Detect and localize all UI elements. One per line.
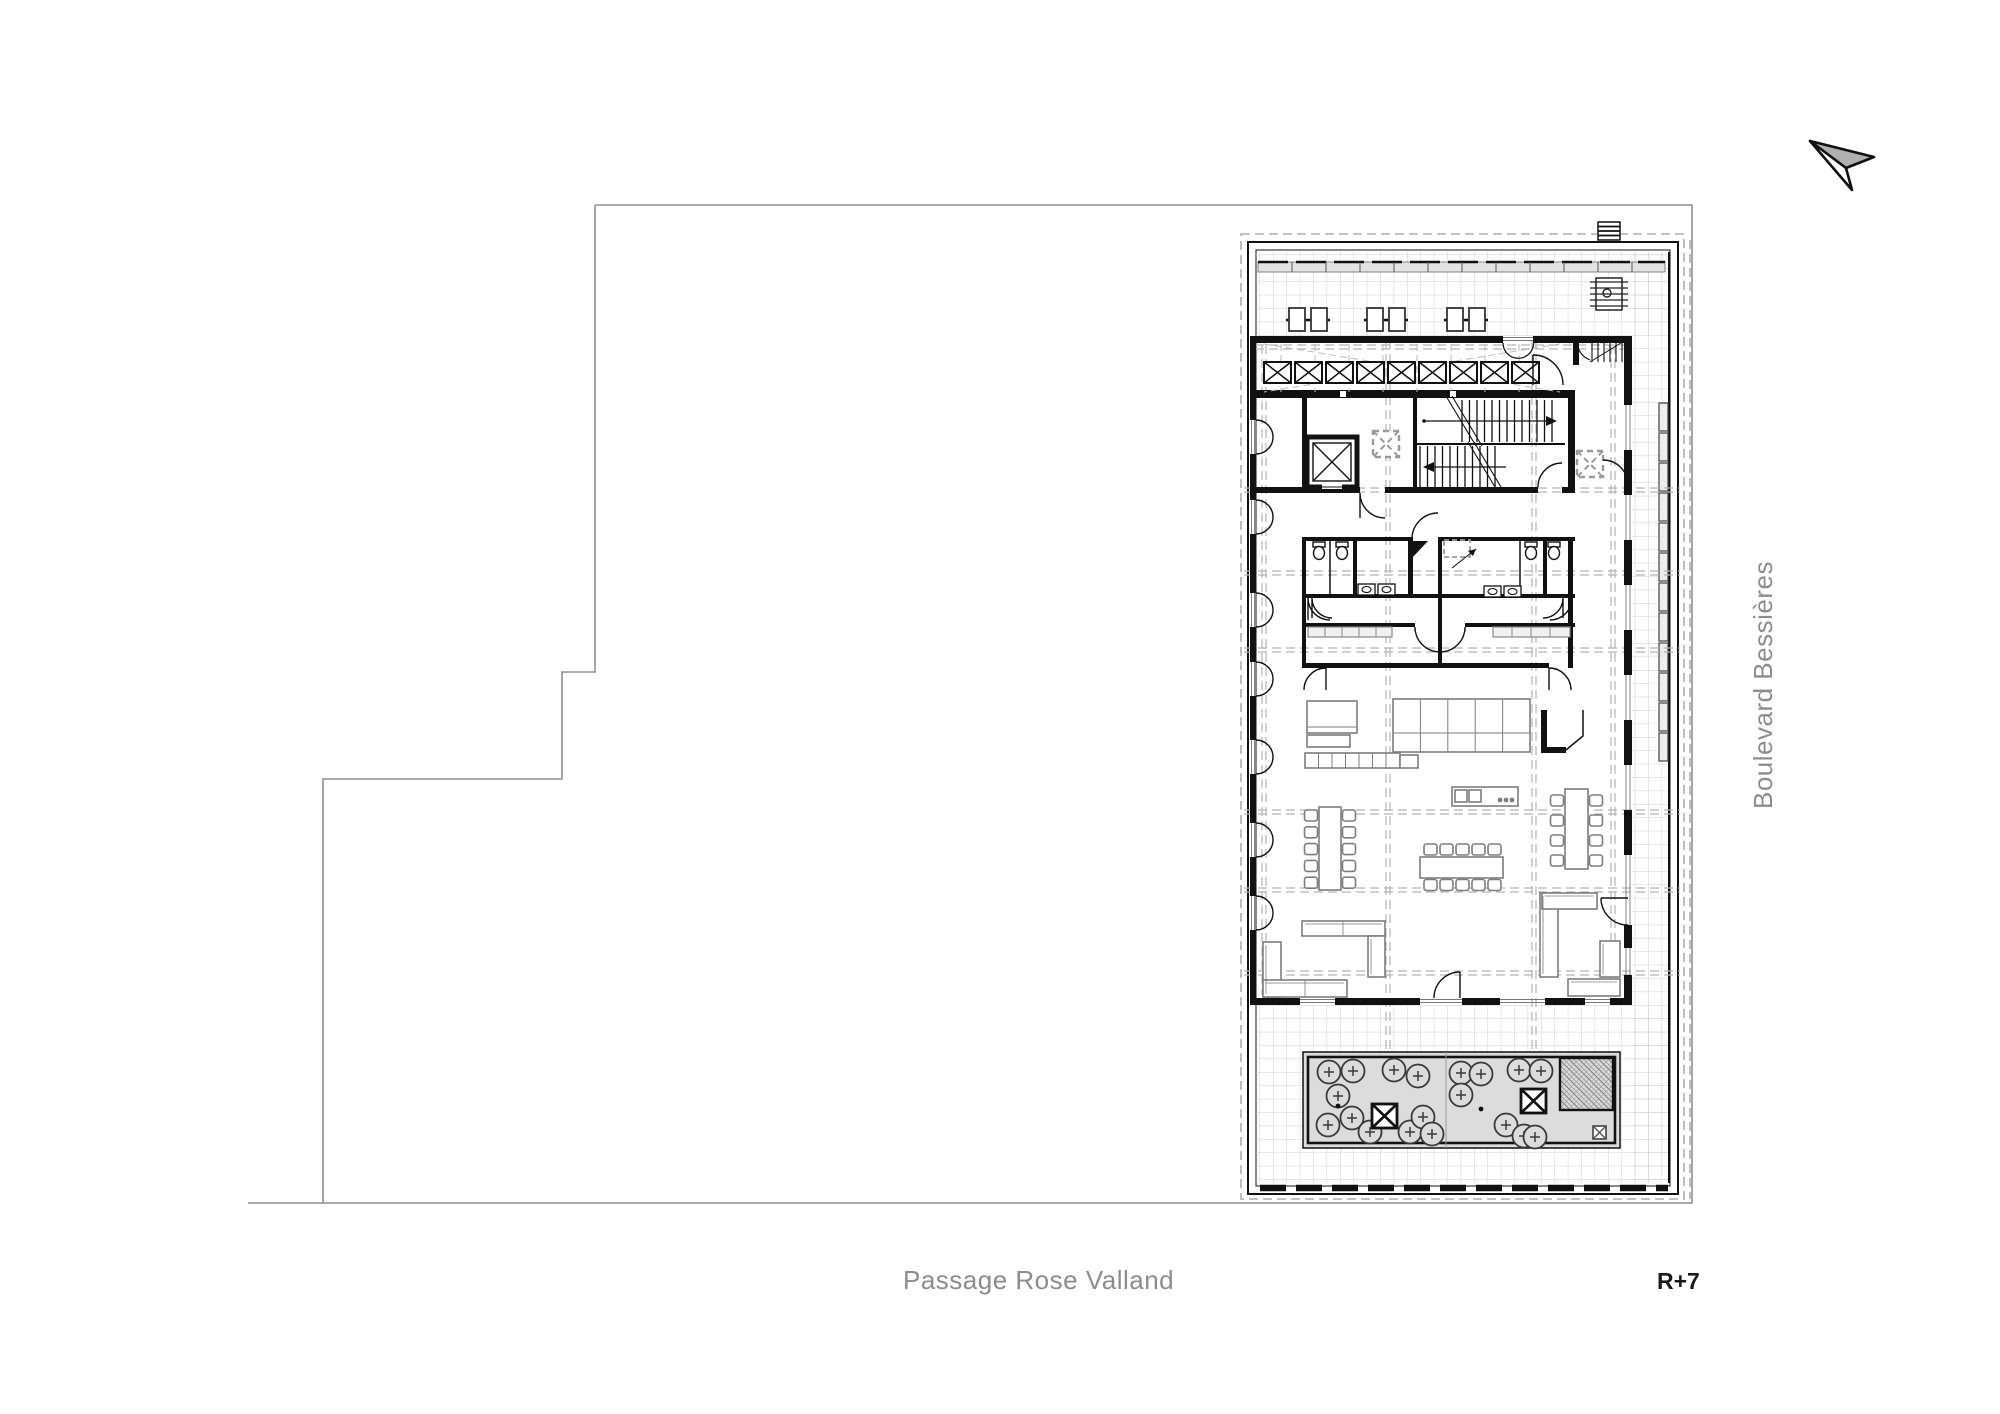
toilet: [1548, 542, 1560, 560]
north-arrow-icon: [1810, 141, 1874, 190]
elevator: [1307, 437, 1357, 489]
tree: [1421, 1123, 1444, 1146]
angled-wall-piece: [1544, 710, 1583, 750]
roof-strip: [1258, 262, 1665, 272]
tree: [1470, 1063, 1493, 1086]
crosshatch-vent: [1560, 1058, 1613, 1110]
counter-row: [1305, 753, 1418, 768]
island-counter: [1452, 787, 1518, 806]
sofa-corner-left: [1263, 942, 1347, 997]
planter-dot: [1336, 1104, 1341, 1109]
planter-small-vent: [1593, 1126, 1606, 1139]
level-label: R+7: [1657, 1268, 1700, 1294]
meeting-rooms: [1302, 598, 1575, 668]
shower: [1444, 540, 1470, 557]
work-table-block: [1393, 699, 1530, 752]
sink: [1484, 586, 1501, 597]
cabinet: [1307, 701, 1357, 747]
toilet: [1313, 542, 1325, 560]
planter-skylight: [1372, 1104, 1397, 1128]
meeting-table-right: [1565, 789, 1588, 869]
sink: [1378, 584, 1395, 595]
planter-dot: [1479, 1107, 1484, 1112]
tree: [1342, 1060, 1365, 1083]
sink: [1358, 584, 1375, 595]
tree: [1530, 1060, 1553, 1083]
floor-plan-sheet: Passage Rose Valland Boulevard Bessières…: [0, 0, 2000, 1414]
plan-drawing: Passage Rose Valland Boulevard Bessières…: [0, 0, 2000, 1414]
tree: [1524, 1126, 1547, 1149]
kitchenette-counter: [1308, 627, 1392, 637]
skylight-box-row: [1264, 344, 1560, 392]
sofa-corner-right: [1540, 893, 1620, 996]
wc-block: [1302, 537, 1575, 598]
main-staircase: [1417, 396, 1565, 492]
planter-skylight: [1521, 1089, 1546, 1113]
meeting-table-left: [1319, 807, 1341, 890]
tree: [1383, 1059, 1406, 1082]
planter: [1303, 1052, 1620, 1149]
ahu-unit: [1590, 278, 1628, 310]
sink: [1504, 586, 1521, 597]
skylight: [1577, 451, 1603, 477]
site-boundary-left-steps: [323, 205, 595, 1203]
toilet: [1525, 542, 1537, 560]
tree: [1407, 1065, 1430, 1088]
tree: [1317, 1114, 1340, 1137]
skylight: [1373, 431, 1399, 457]
tree: [1508, 1059, 1531, 1082]
tree: [1318, 1061, 1341, 1084]
street-label-bottom: Passage Rose Valland: [903, 1265, 1174, 1295]
street-label-right: Boulevard Bessières: [1748, 561, 1778, 809]
tree: [1450, 1084, 1473, 1107]
terrace-stair: [1577, 341, 1624, 362]
toilet: [1336, 542, 1348, 560]
drawing-stamp: [1598, 222, 1620, 240]
meeting-table-center: [1420, 857, 1503, 878]
sofa-mid-left: [1302, 921, 1385, 977]
